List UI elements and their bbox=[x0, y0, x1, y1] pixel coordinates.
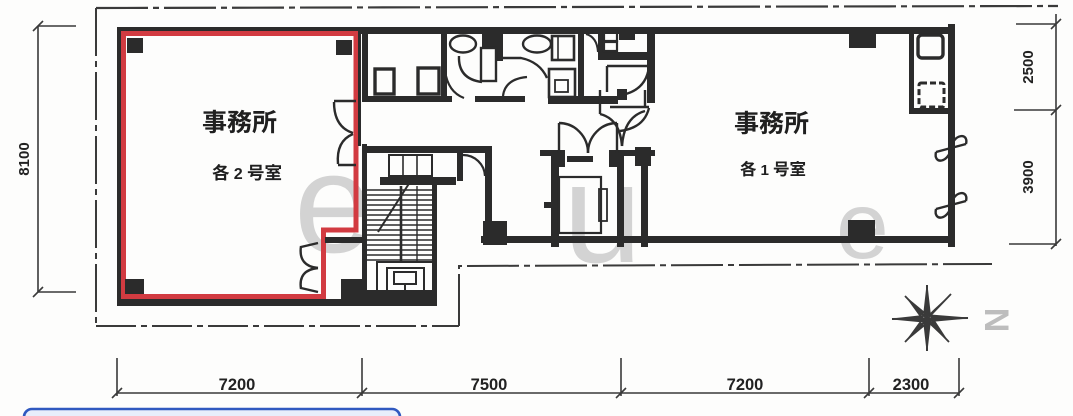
svg-text:7200: 7200 bbox=[219, 376, 256, 394]
svg-text:3900: 3900 bbox=[1020, 160, 1037, 193]
svg-text:2500: 2500 bbox=[1020, 50, 1037, 83]
svg-text:N: N bbox=[977, 308, 1015, 333]
svg-text:e: e bbox=[294, 124, 373, 283]
svg-text:2300: 2300 bbox=[893, 376, 930, 394]
svg-text:7200: 7200 bbox=[727, 376, 764, 394]
svg-text:7500: 7500 bbox=[471, 376, 508, 394]
svg-text:8100: 8100 bbox=[16, 142, 33, 175]
svg-text:2: 2 bbox=[234, 165, 243, 183]
svg-text:1: 1 bbox=[761, 162, 770, 179]
